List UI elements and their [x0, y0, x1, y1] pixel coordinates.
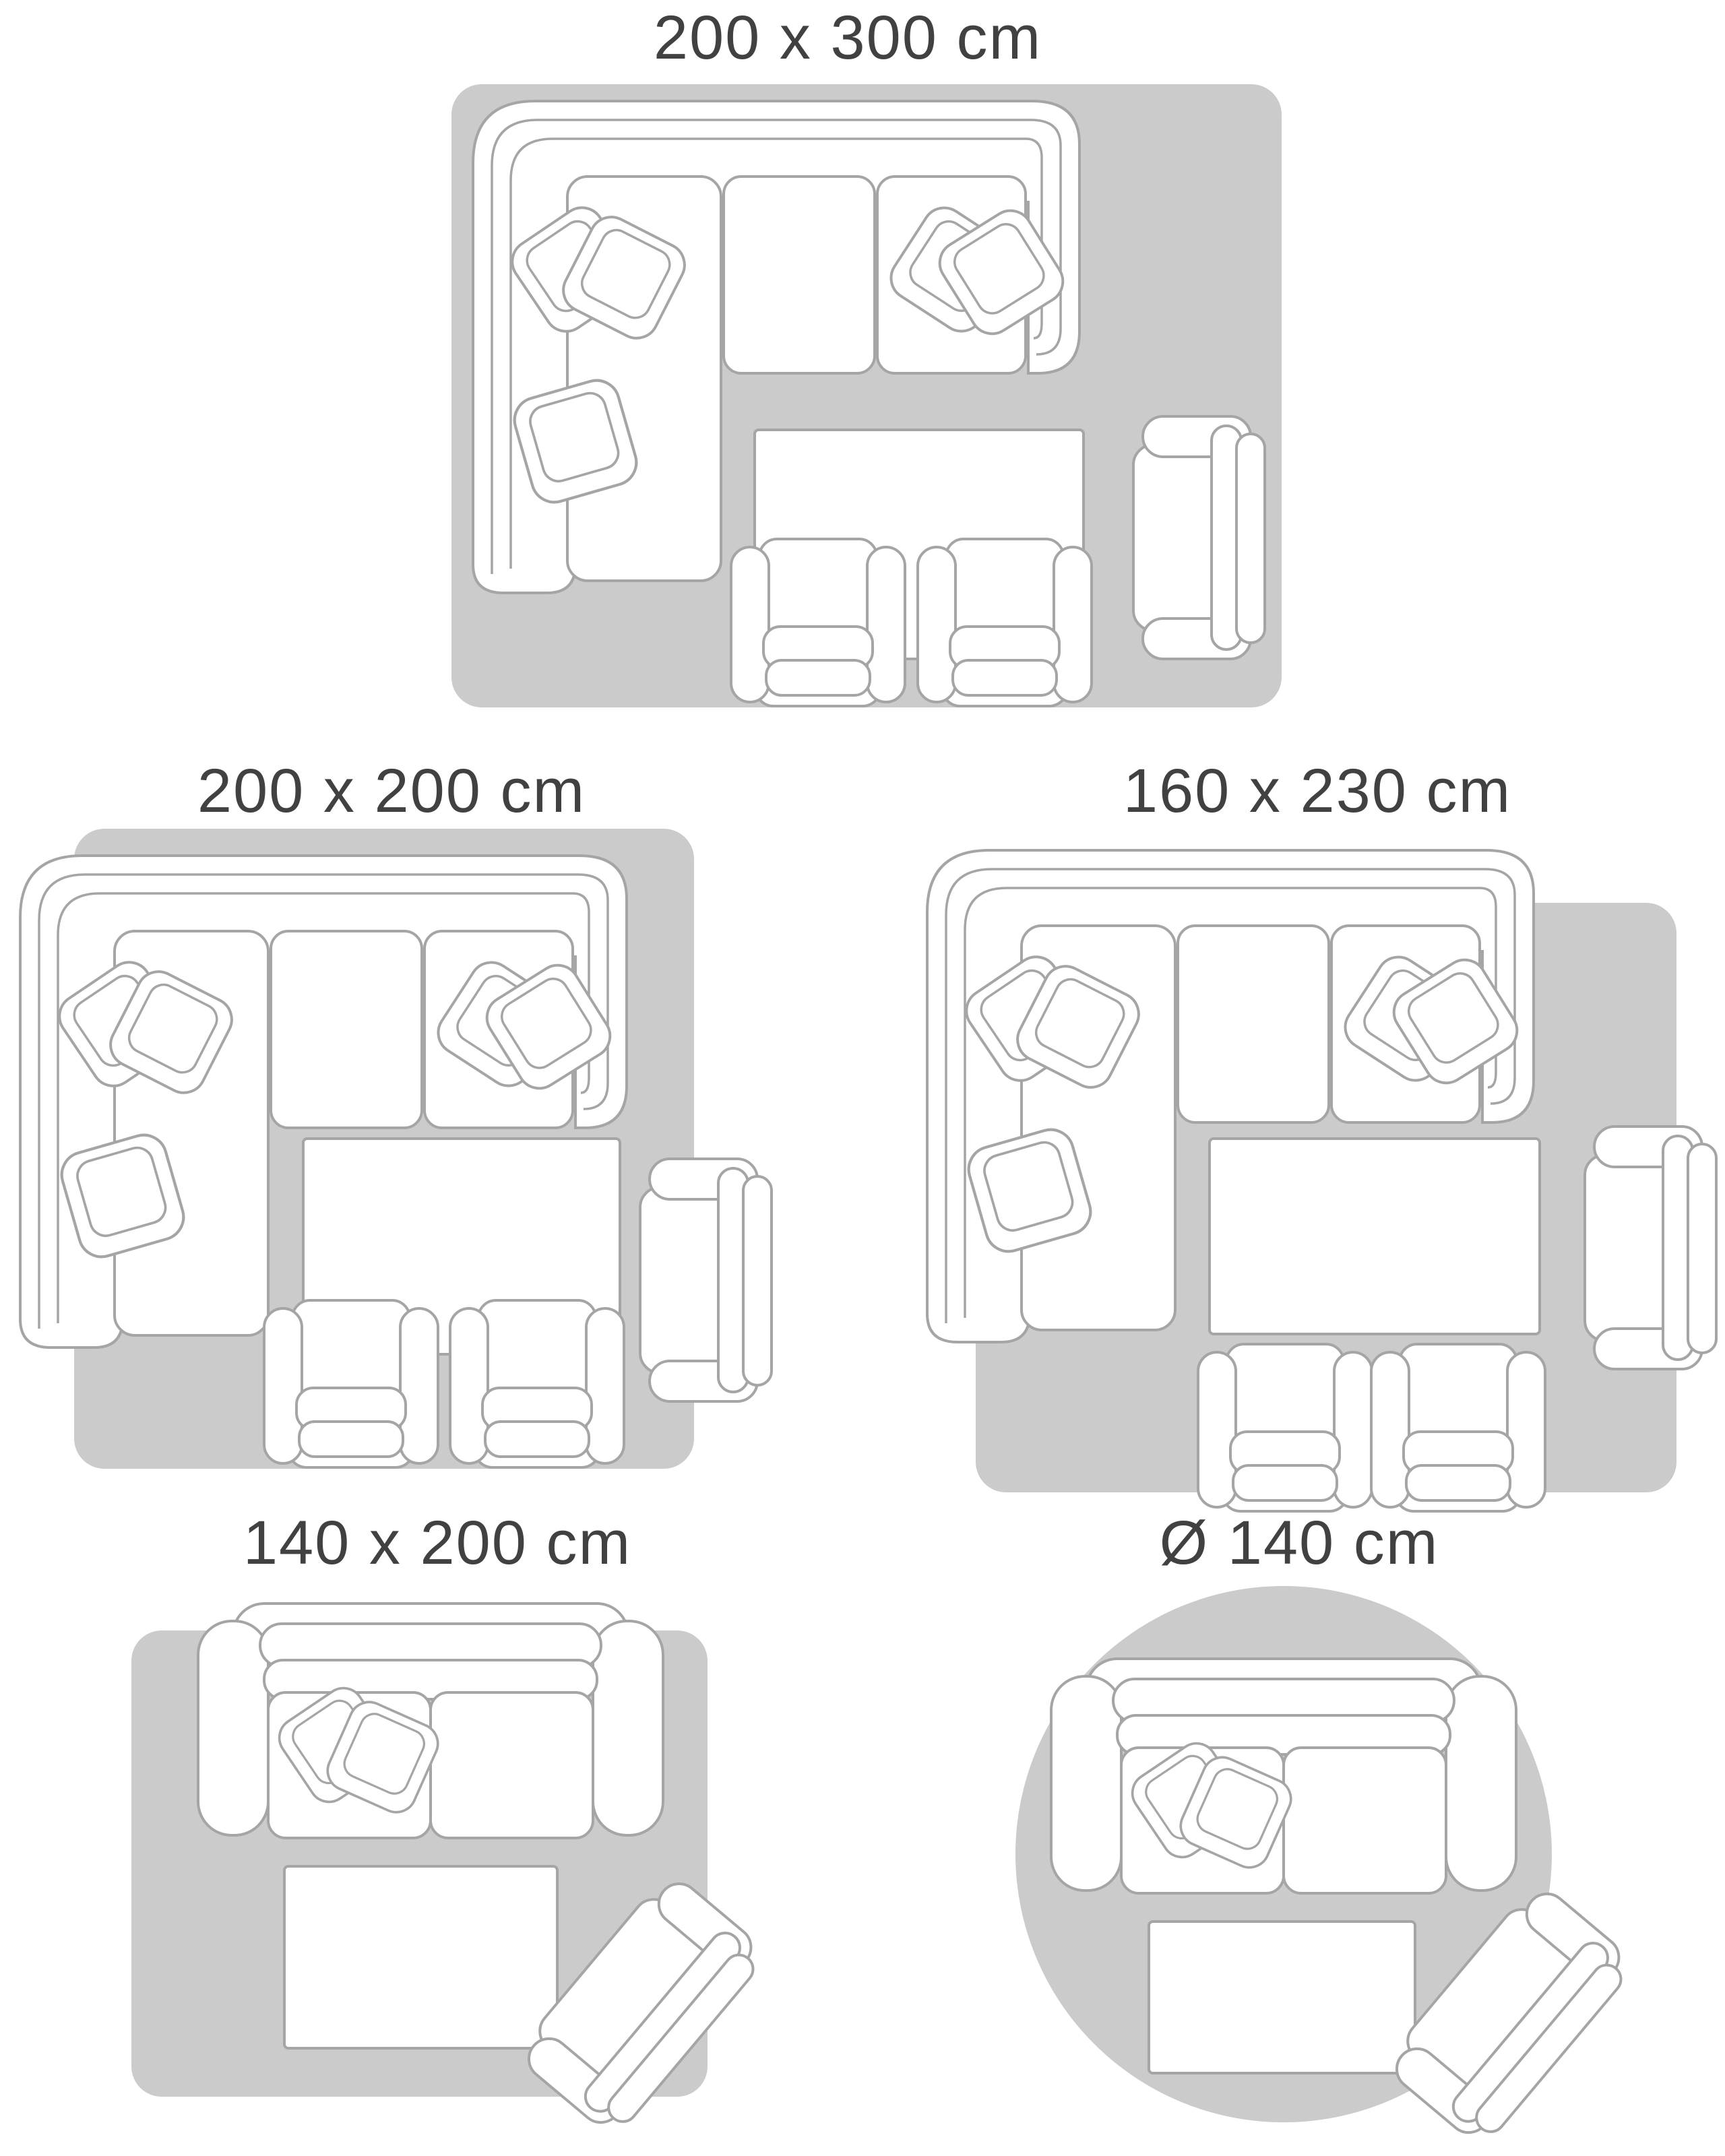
coffee-table	[1149, 1922, 1415, 2073]
panel-140x200	[131, 1604, 770, 2140]
diagram-canvas	[0, 0, 1725, 2156]
side-chair	[731, 539, 905, 706]
rug-size-guide: 200 x 300 cm 200 x 200 cm 160 x 230 cm 1…	[0, 0, 1725, 2156]
side-chair	[1371, 1344, 1545, 1511]
side-chair	[918, 539, 1092, 706]
two-seat-sofa	[1051, 1659, 1516, 1893]
coffee-table	[284, 1866, 557, 2048]
size-label-d140: Ø 140 cm	[1160, 1512, 1439, 1574]
armchair	[1133, 416, 1265, 659]
size-label-140x200: 140 x 200 cm	[243, 1512, 631, 1574]
armchair	[640, 1159, 772, 1401]
two-seat-sofa	[198, 1604, 663, 1838]
side-chair	[1198, 1344, 1372, 1511]
panel-200x300	[451, 84, 1282, 707]
coffee-table	[1210, 1139, 1540, 1334]
side-chair	[450, 1300, 624, 1467]
size-label-160x230: 160 x 230 cm	[1123, 760, 1511, 822]
panel-d140	[1015, 1586, 1638, 2150]
side-chair	[264, 1300, 438, 1467]
panel-160x230	[927, 850, 1716, 1511]
size-label-200x300: 200 x 300 cm	[654, 7, 1042, 69]
panel-200x200	[20, 829, 772, 1469]
size-label-200x200: 200 x 200 cm	[197, 760, 586, 822]
armchair	[1585, 1127, 1716, 1369]
